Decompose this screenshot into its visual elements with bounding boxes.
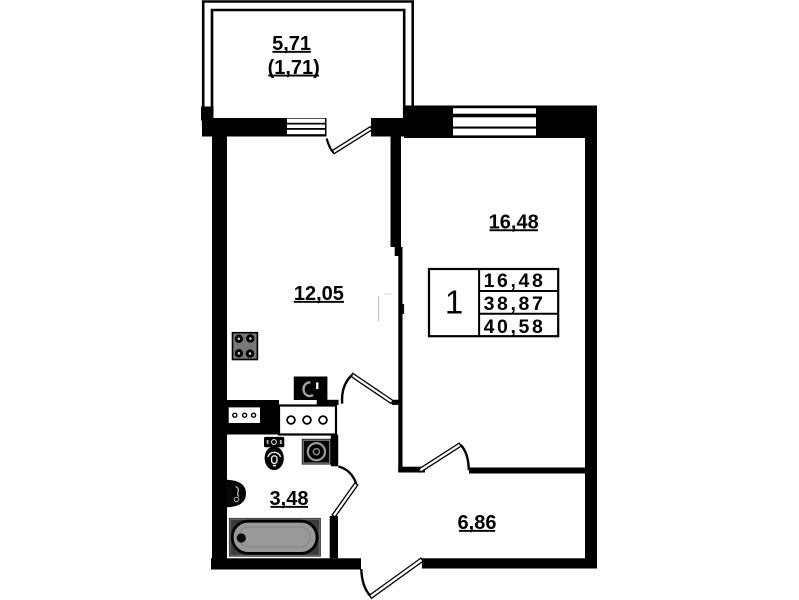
svg-text:38,87: 38,87 [484, 293, 546, 315]
svg-text:40,58: 40,58 [484, 316, 546, 338]
svg-text:16,48: 16,48 [484, 270, 546, 292]
svg-text:1: 1 [445, 284, 463, 321]
